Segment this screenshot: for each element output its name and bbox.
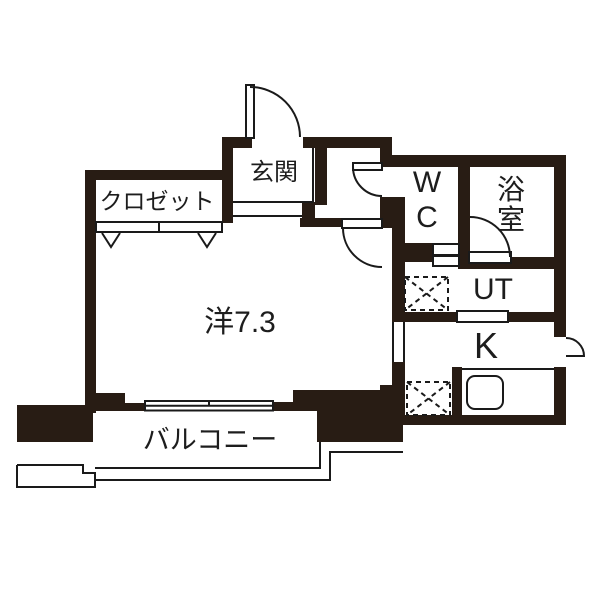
- bathroom-label-char1: 浴: [497, 174, 525, 205]
- wall-entrance-top-right: [303, 137, 392, 148]
- wall-room-bottom-right: [273, 402, 293, 411]
- wall-kitchen-bottom: [393, 415, 566, 425]
- kitchen-label: K: [474, 325, 498, 366]
- wc-label-line1: W: [413, 166, 442, 199]
- ut-kitchen-opening: [457, 311, 508, 322]
- floorplan-page: 玄関 クロゼット W C 浴 室 UT K 洋7.3 バルコニー: [0, 0, 600, 600]
- western-room-label: 洋7.3: [204, 306, 276, 339]
- washbasin-icon-lower: [433, 256, 459, 266]
- room-door-leaf: [342, 219, 382, 228]
- closet-label: クロゼット: [100, 188, 215, 214]
- kitchen-back-door-gap: [554, 338, 566, 366]
- balcony-label: バルコニー: [143, 425, 277, 455]
- wall-room-top: [300, 218, 342, 227]
- washbasin-icon-upper: [433, 244, 459, 255]
- wall-block-below-wc: [402, 243, 433, 262]
- wall-kitchen-counter-stub: [452, 367, 462, 415]
- entrance-door-leaf: [246, 85, 254, 138]
- wall-right-upper: [554, 167, 566, 337]
- wc-label-line2: C: [416, 201, 438, 234]
- wall-entrance-left: [222, 137, 233, 223]
- bathroom-label-char2: 室: [497, 204, 525, 235]
- sink-icon: [467, 376, 503, 409]
- floorplan-drawing: 玄関 クロゼット W C 浴 室 UT K 洋7.3 バルコニー: [0, 0, 600, 600]
- bathroom-door-leaf: [469, 252, 511, 263]
- wall-entrance-hall-divider: [315, 148, 327, 205]
- entrance-label: 玄関: [250, 159, 298, 186]
- wall-left: [85, 170, 96, 413]
- wc-door-leaf: [353, 163, 382, 170]
- wall-balcony-left-block: [17, 405, 93, 442]
- wall-room-bottom-left: [125, 403, 145, 411]
- utility-label: UT: [473, 273, 513, 306]
- wall-closet-top: [85, 170, 233, 180]
